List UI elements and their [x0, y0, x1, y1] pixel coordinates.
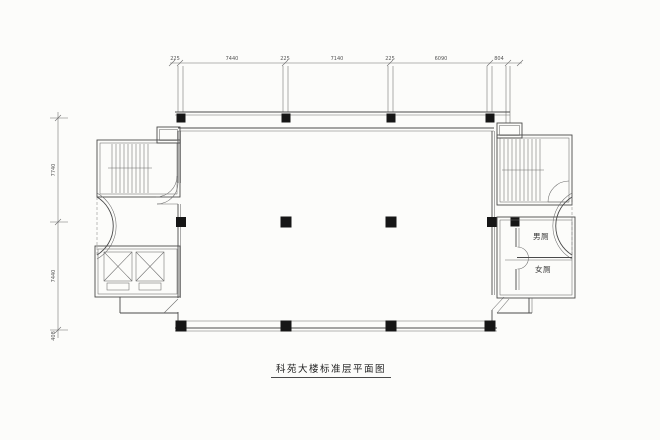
dim-top-2: 225: [280, 56, 290, 62]
top-dimension-line: 225 7440 225 7140 225 6090 804: [169, 56, 523, 123]
toilet-block: 男厕 女厕: [497, 217, 575, 313]
dim-top-6: 804: [494, 56, 504, 62]
dim-left-0: 7740: [51, 164, 57, 177]
dim-top-1: 7440: [226, 56, 239, 62]
dim-top-4: 225: [385, 56, 395, 62]
floorplan-drawing: 225 7440 225 7140 225 6090 804 7740 7440…: [0, 0, 660, 440]
dim-left-1: 7440: [51, 270, 57, 283]
drawing-title: 科苑大楼标准层平面图: [271, 363, 391, 378]
dim-top-0: 225: [170, 56, 180, 62]
elevator-shafts: [95, 246, 180, 313]
right-bay-window: [553, 193, 572, 259]
drawing-title-text: 科苑大楼标准层平面图: [276, 363, 386, 375]
right-stairwell: [497, 123, 572, 205]
left-stairwell: [97, 127, 180, 197]
room-label-male-toilet: 男厕: [533, 232, 549, 241]
dim-top-5: 6090: [435, 56, 448, 62]
room-label-female-toilet: 女厕: [535, 264, 551, 274]
dim-left-2: 408: [51, 331, 57, 341]
left-dimension-line: 7740 7440 408: [50, 112, 68, 341]
floorplan-scan: 225 7440 225 7140 225 6090 804 7740 7440…: [0, 0, 660, 440]
structural-grid-columns: [176, 114, 520, 332]
main-hall-walls: [157, 112, 510, 331]
dim-top-3: 7140: [331, 56, 344, 62]
